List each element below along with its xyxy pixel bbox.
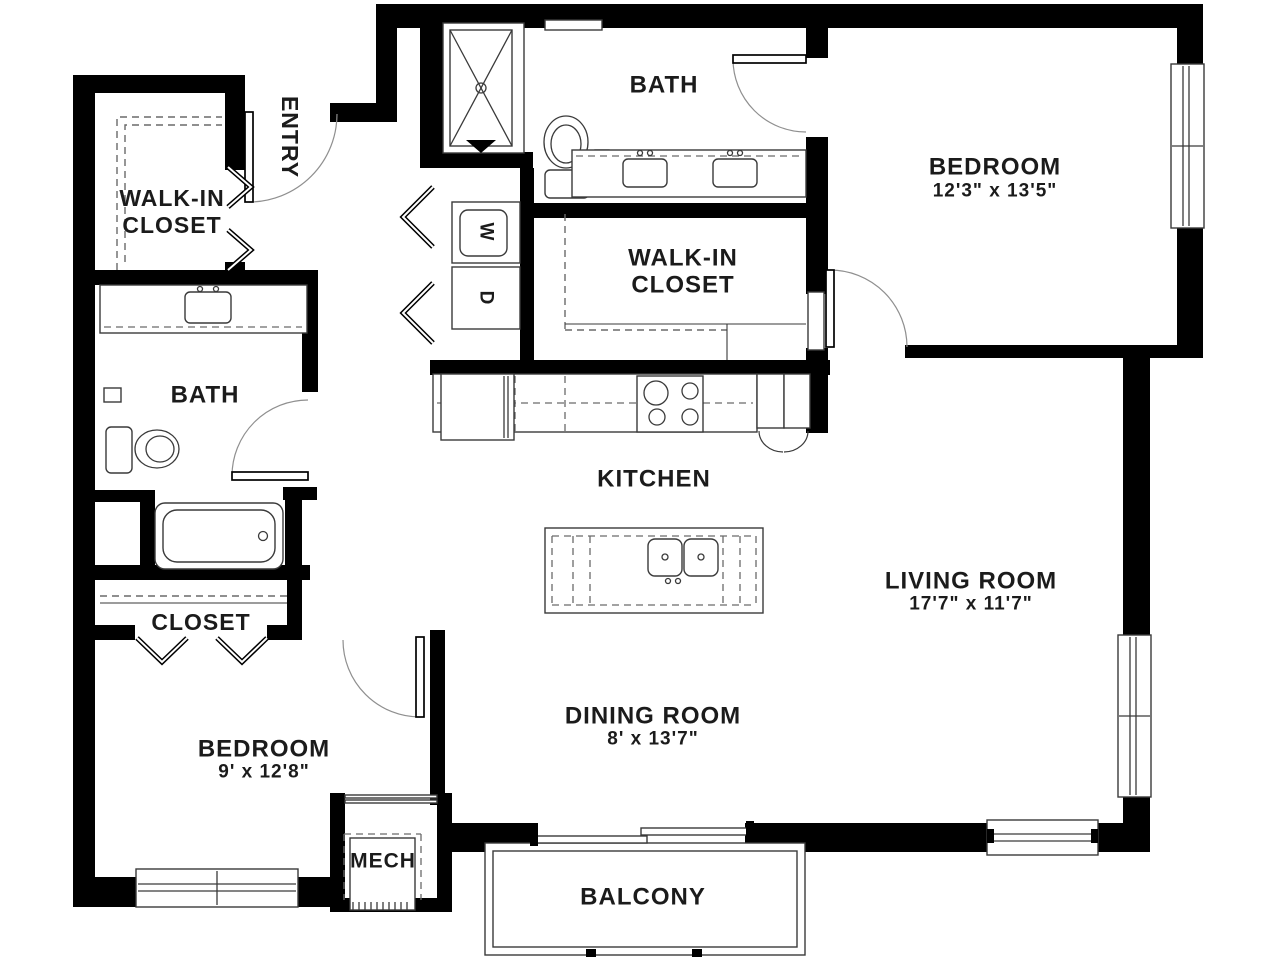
label-walk-in-closet-2-line-2: CLOSET [631, 272, 734, 299]
toilet-bath-2 [106, 427, 132, 473]
wall [140, 497, 155, 567]
vanity-bath-2 [185, 292, 231, 323]
refrigerator [757, 374, 784, 428]
label-dryer: D [476, 291, 497, 306]
floor-plan-page: { "plan": { "canvas": { "w":1280, "h":96… [0, 0, 1280, 960]
wall [376, 4, 397, 105]
wall [225, 93, 245, 170]
wall [330, 103, 397, 122]
balcony-sliding-door [746, 821, 754, 836]
kitchen-cabinet [441, 374, 514, 440]
label-walk-in-closet-2-line-1: WALK-IN [628, 245, 738, 272]
toilet-bath-2 [146, 436, 174, 462]
floor-plan-svg: WALK-INCLOSETENTRYBATHBEDROOM12'3" x 13'… [0, 0, 1280, 960]
paper-holder-bath-2 [104, 388, 121, 402]
label-entry: ENTRY [277, 96, 303, 178]
wall [1177, 226, 1203, 358]
label-dining-room-dims: 8' x 13'7" [607, 729, 698, 750]
island-sink [648, 539, 682, 576]
doorway-casing-closet-2 [808, 292, 824, 350]
bath-2-door-leaf [232, 472, 308, 480]
floor-plan-stage: WALK-INCLOSETENTRYBATHBEDROOM12'3" x 13'… [0, 0, 1280, 960]
wall [437, 793, 452, 912]
wall [267, 625, 302, 640]
label-living-room-dims: 17'7" x 11'7" [909, 594, 1033, 615]
label-bedroom-2: BEDROOM [198, 736, 330, 763]
bedroom-1-door-leaf [826, 270, 834, 347]
label-closet: CLOSET [151, 609, 250, 635]
label-bedroom-1-dims: 12'3" x 13'5" [933, 181, 1058, 202]
island-sink [684, 539, 718, 576]
wall [1177, 24, 1203, 68]
balcony-rail [586, 949, 596, 957]
wall [420, 152, 533, 168]
label-mech: MECH [350, 850, 416, 873]
vanity-bath-1 [713, 159, 757, 187]
mech-door [345, 795, 437, 798]
wall [806, 137, 828, 214]
wall [95, 490, 155, 502]
label-kitchen: KITCHEN [597, 466, 711, 493]
label-walk-in-closet-1-line-1: WALK-IN [119, 185, 224, 211]
wall [73, 75, 245, 93]
wall [533, 203, 815, 218]
balcony-sliding-door [530, 831, 538, 846]
bath-1-door-leaf [733, 55, 806, 63]
label-bath-2: BATH [171, 382, 240, 409]
balcony-sliding-door [641, 828, 747, 835]
window-living-room-bottom [1091, 829, 1098, 843]
wall [430, 630, 445, 805]
wall [73, 75, 95, 907]
wall [95, 270, 318, 285]
label-walk-in-closet-1-line-2: CLOSET [122, 212, 221, 238]
wall [420, 18, 443, 155]
window-living-room-bottom [987, 829, 994, 843]
balcony-rail [692, 949, 702, 957]
wall [1123, 345, 1150, 641]
label-washer: W [476, 223, 497, 242]
label-balcony: BALCONY [580, 884, 706, 911]
vanity-bath-1 [623, 159, 667, 187]
wall [806, 28, 828, 58]
window-living-room-bottom [987, 820, 1098, 855]
bedroom-2-door-leaf [416, 637, 424, 717]
balcony-sliding-door [537, 836, 647, 843]
label-bedroom-1: BEDROOM [929, 154, 1061, 181]
wall [806, 214, 828, 294]
refrigerator [784, 374, 810, 428]
wall [520, 168, 534, 366]
mech-door [345, 800, 437, 803]
wall [430, 360, 830, 375]
label-bedroom-2-dims: 9' x 12'8" [218, 762, 309, 783]
wall [905, 345, 1203, 358]
vanity-bath-1 [572, 150, 806, 197]
label-bath-1: BATH [630, 72, 699, 99]
wall [95, 625, 135, 640]
label-living-room: LIVING ROOM [885, 568, 1057, 595]
bath-shelf [545, 20, 602, 30]
label-dining-room: DINING ROOM [565, 703, 741, 730]
